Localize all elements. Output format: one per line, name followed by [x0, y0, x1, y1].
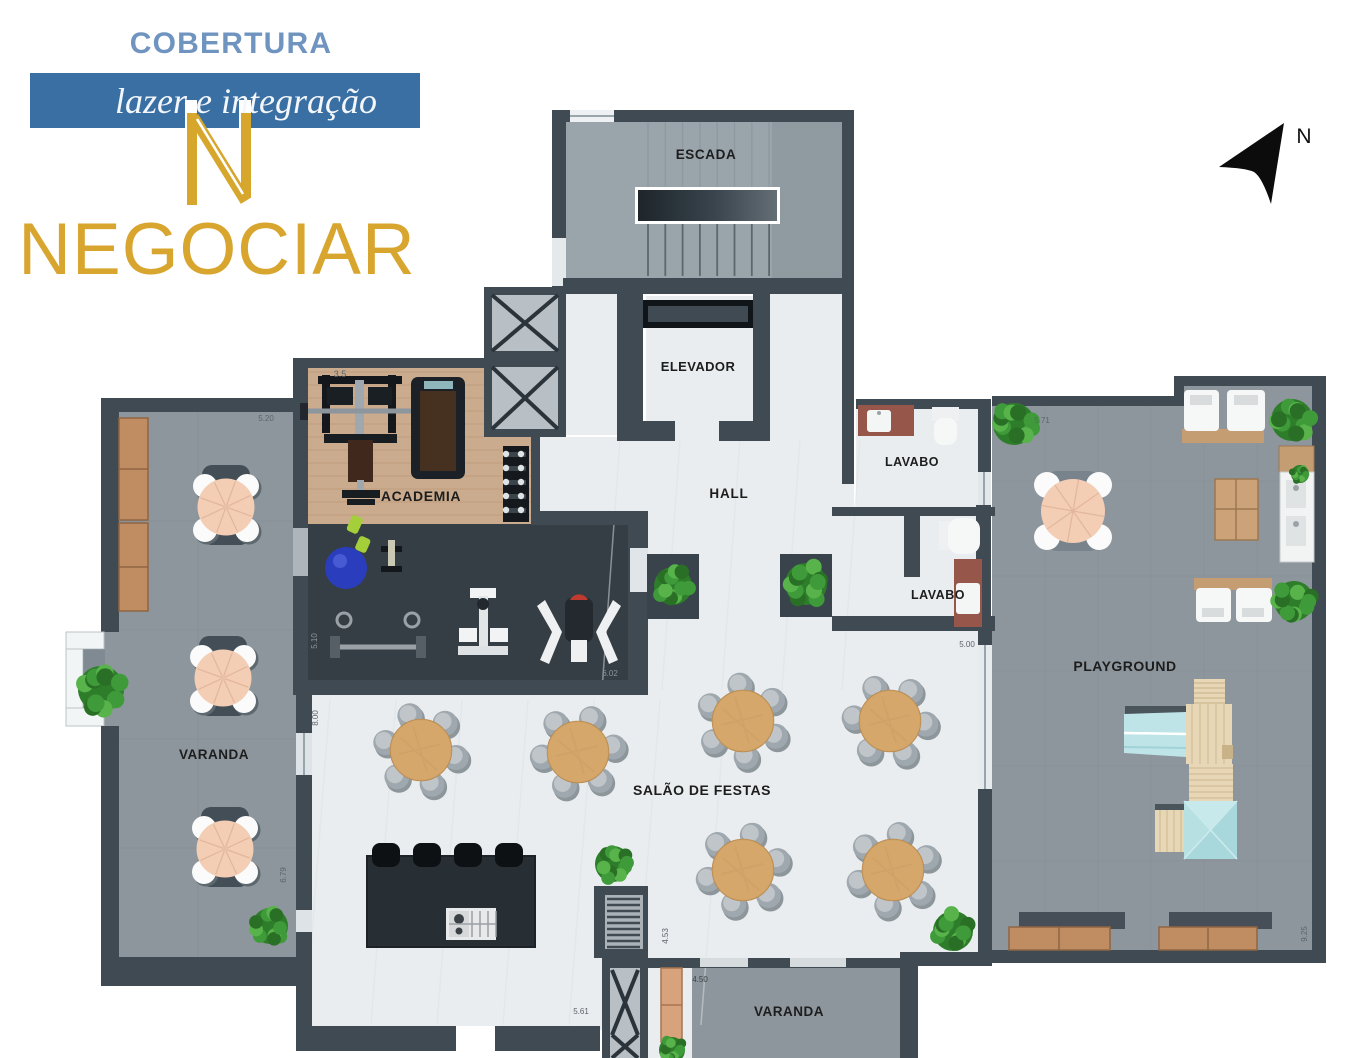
svg-text:N: N — [1296, 125, 1311, 148]
svg-text:ACADEMIA: ACADEMIA — [381, 488, 461, 504]
svg-text:VARANDA: VARANDA — [179, 747, 249, 762]
svg-text:5.71: 5.71 — [1034, 416, 1050, 425]
svg-text:5.61: 5.61 — [573, 1007, 589, 1016]
svg-text:9.25: 9.25 — [1300, 926, 1309, 942]
svg-text:6.79: 6.79 — [279, 867, 288, 883]
svg-text:HALL: HALL — [709, 486, 748, 501]
svg-text:5.20: 5.20 — [258, 414, 274, 423]
svg-text:5.10: 5.10 — [310, 633, 319, 649]
svg-text:8.00: 8.00 — [311, 710, 320, 726]
svg-text:LAVABO: LAVABO — [885, 455, 939, 469]
svg-text:4.50: 4.50 — [692, 975, 708, 984]
svg-text:PLAYGROUND: PLAYGROUND — [1073, 658, 1176, 674]
svg-text:VARANDA: VARANDA — [754, 1004, 824, 1019]
svg-text:3.5: 3.5 — [334, 369, 347, 379]
svg-text:NEGOCIAR: NEGOCIAR — [18, 209, 415, 290]
svg-text:5.00: 5.00 — [959, 640, 975, 649]
svg-text:SALÃO DE FESTAS: SALÃO DE FESTAS — [633, 781, 771, 798]
svg-text:6.02: 6.02 — [602, 669, 618, 678]
svg-text:4.53: 4.53 — [661, 928, 670, 944]
svg-text:COBERTURA: COBERTURA — [130, 27, 332, 60]
svg-text:ESCADA: ESCADA — [676, 147, 737, 162]
svg-text:LAVABO: LAVABO — [911, 588, 965, 602]
svg-text:ELEVADOR: ELEVADOR — [661, 359, 736, 374]
